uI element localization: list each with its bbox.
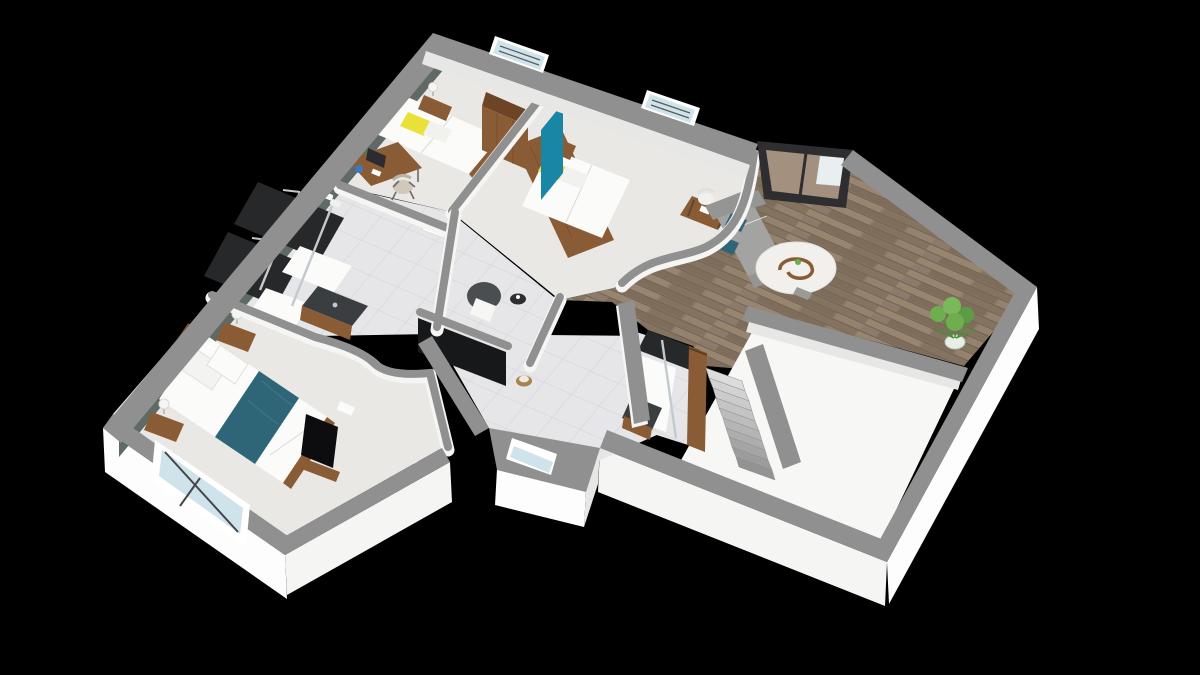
render-canvas bbox=[0, 0, 1200, 675]
sliding-glass-door bbox=[757, 141, 853, 208]
table-plant-sprig bbox=[795, 259, 801, 265]
master-lamp-s bbox=[159, 399, 169, 409]
vanity-faucet bbox=[333, 303, 338, 308]
desk-1-blue-object bbox=[355, 165, 363, 173]
stair-balustrade-wood bbox=[687, 346, 707, 452]
door-glass-bright-pane bbox=[816, 156, 844, 186]
plant-leaves-2 bbox=[943, 297, 961, 315]
plant-leaves-4 bbox=[946, 313, 964, 331]
side-table-cup bbox=[516, 295, 520, 299]
lamp-1 bbox=[429, 83, 438, 92]
round-rug bbox=[756, 242, 836, 294]
desk-chair-2-seat bbox=[698, 193, 714, 205]
stool-top bbox=[519, 376, 529, 383]
floorplan-3d-viewport[interactable] bbox=[0, 0, 1200, 675]
